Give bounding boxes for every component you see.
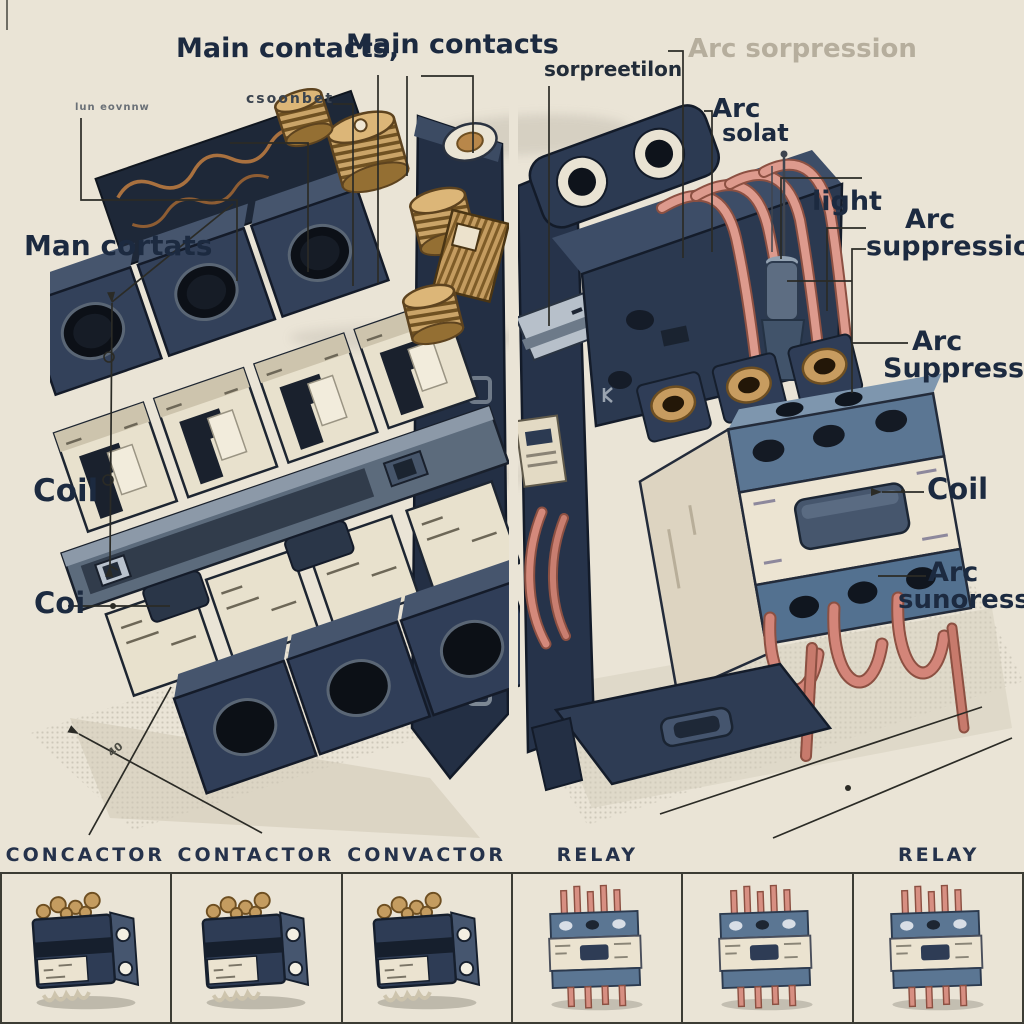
thumbnail-cell-5	[683, 874, 853, 1022]
thumbnail-strip	[0, 872, 1024, 1024]
label-main-contacts-left: Main contacts,	[176, 35, 399, 63]
thumbnail-caption-1: CONCACTOR	[0, 844, 171, 866]
contactor-thumbnail	[180, 882, 332, 1015]
contactor-thumbnail	[10, 882, 162, 1015]
contactor-thumbnail	[351, 882, 503, 1015]
frame-tick	[6, 0, 8, 30]
thumbnail-cell-3	[343, 874, 513, 1022]
relay-thumbnail	[521, 882, 673, 1015]
label-main-contacts-right: Main contacts	[346, 31, 559, 59]
relay-thumbnail	[862, 882, 1014, 1015]
technical-diagram-canvas: Main contacts,Main contactslun eovnnwcso…	[0, 0, 1024, 1024]
panel-divider	[509, 58, 518, 838]
thumbnail-caption-3: CONVACTOR	[341, 844, 512, 866]
thumbnail-caption-2: CONTACTOR	[171, 844, 342, 866]
thumbnail-cell-2	[172, 874, 342, 1022]
caption-row: CONCACTORCONTACTORCONVACTORRELAYRELAY	[0, 838, 1024, 872]
thumbnail-caption-4: RELAY	[512, 844, 683, 866]
label-sorpreetilon: sorpreetilon	[544, 59, 682, 80]
thumbnail-cell-4	[513, 874, 683, 1022]
thumbnail-cell-1	[2, 874, 172, 1022]
relay-cutaway-illustration	[512, 88, 1024, 828]
contactor-cutaway-illustration	[50, 78, 520, 853]
relay-thumbnail	[691, 882, 843, 1015]
label-arc-sorpression-ghost: Arc sorpression	[688, 36, 917, 63]
thumbnail-caption-6: RELAY	[853, 844, 1024, 866]
thumbnail-cell-6	[854, 874, 1024, 1022]
